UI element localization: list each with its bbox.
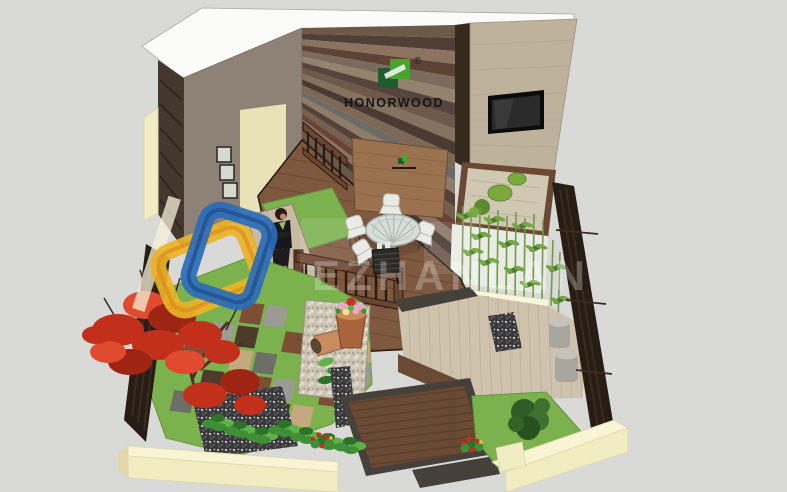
wood-privacy-panel [352, 138, 448, 218]
pouf-top [555, 349, 578, 360]
watermark-text: EZHANLAN [312, 252, 591, 299]
maple-foliage [90, 341, 126, 363]
woman-face [280, 214, 286, 220]
mini-logo-square-green [402, 155, 408, 161]
moss-circle [488, 185, 512, 201]
picture-frame [220, 165, 234, 180]
moss-circle [508, 173, 526, 185]
wall-mounted-tv [488, 90, 544, 134]
picture-frame [217, 147, 231, 162]
maple-foliage [204, 340, 240, 364]
maple-foliage [82, 326, 110, 344]
wall-edge-strip [455, 23, 470, 170]
garden-render: ® HONORWOOD [0, 0, 787, 492]
cart-item [385, 242, 390, 249]
maple-foliage [183, 382, 227, 408]
brand-name-text: HONORWOOD [344, 96, 444, 110]
maple-foliage [165, 350, 205, 374]
privacy-panel-face [352, 138, 448, 218]
picture-frame [223, 183, 237, 198]
mini-logo-text-bar [392, 167, 416, 169]
registered-mark: ® [414, 56, 422, 67]
pouf-top [549, 317, 570, 327]
garden-render-stage: ® HONORWOOD [0, 0, 787, 492]
outer-cream-strip [144, 108, 158, 220]
maple-foliage [234, 395, 266, 415]
terracotta-flower-pot [335, 298, 366, 348]
maple-foliage [220, 369, 260, 395]
